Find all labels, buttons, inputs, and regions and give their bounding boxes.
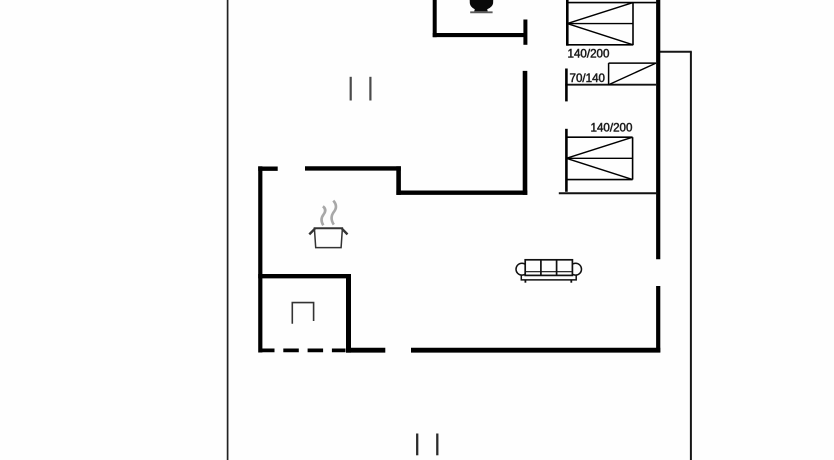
svg-text:140/200: 140/200 [591,122,633,135]
svg-text:140/200: 140/200 [568,47,610,60]
svg-text:70/140: 70/140 [570,72,605,85]
